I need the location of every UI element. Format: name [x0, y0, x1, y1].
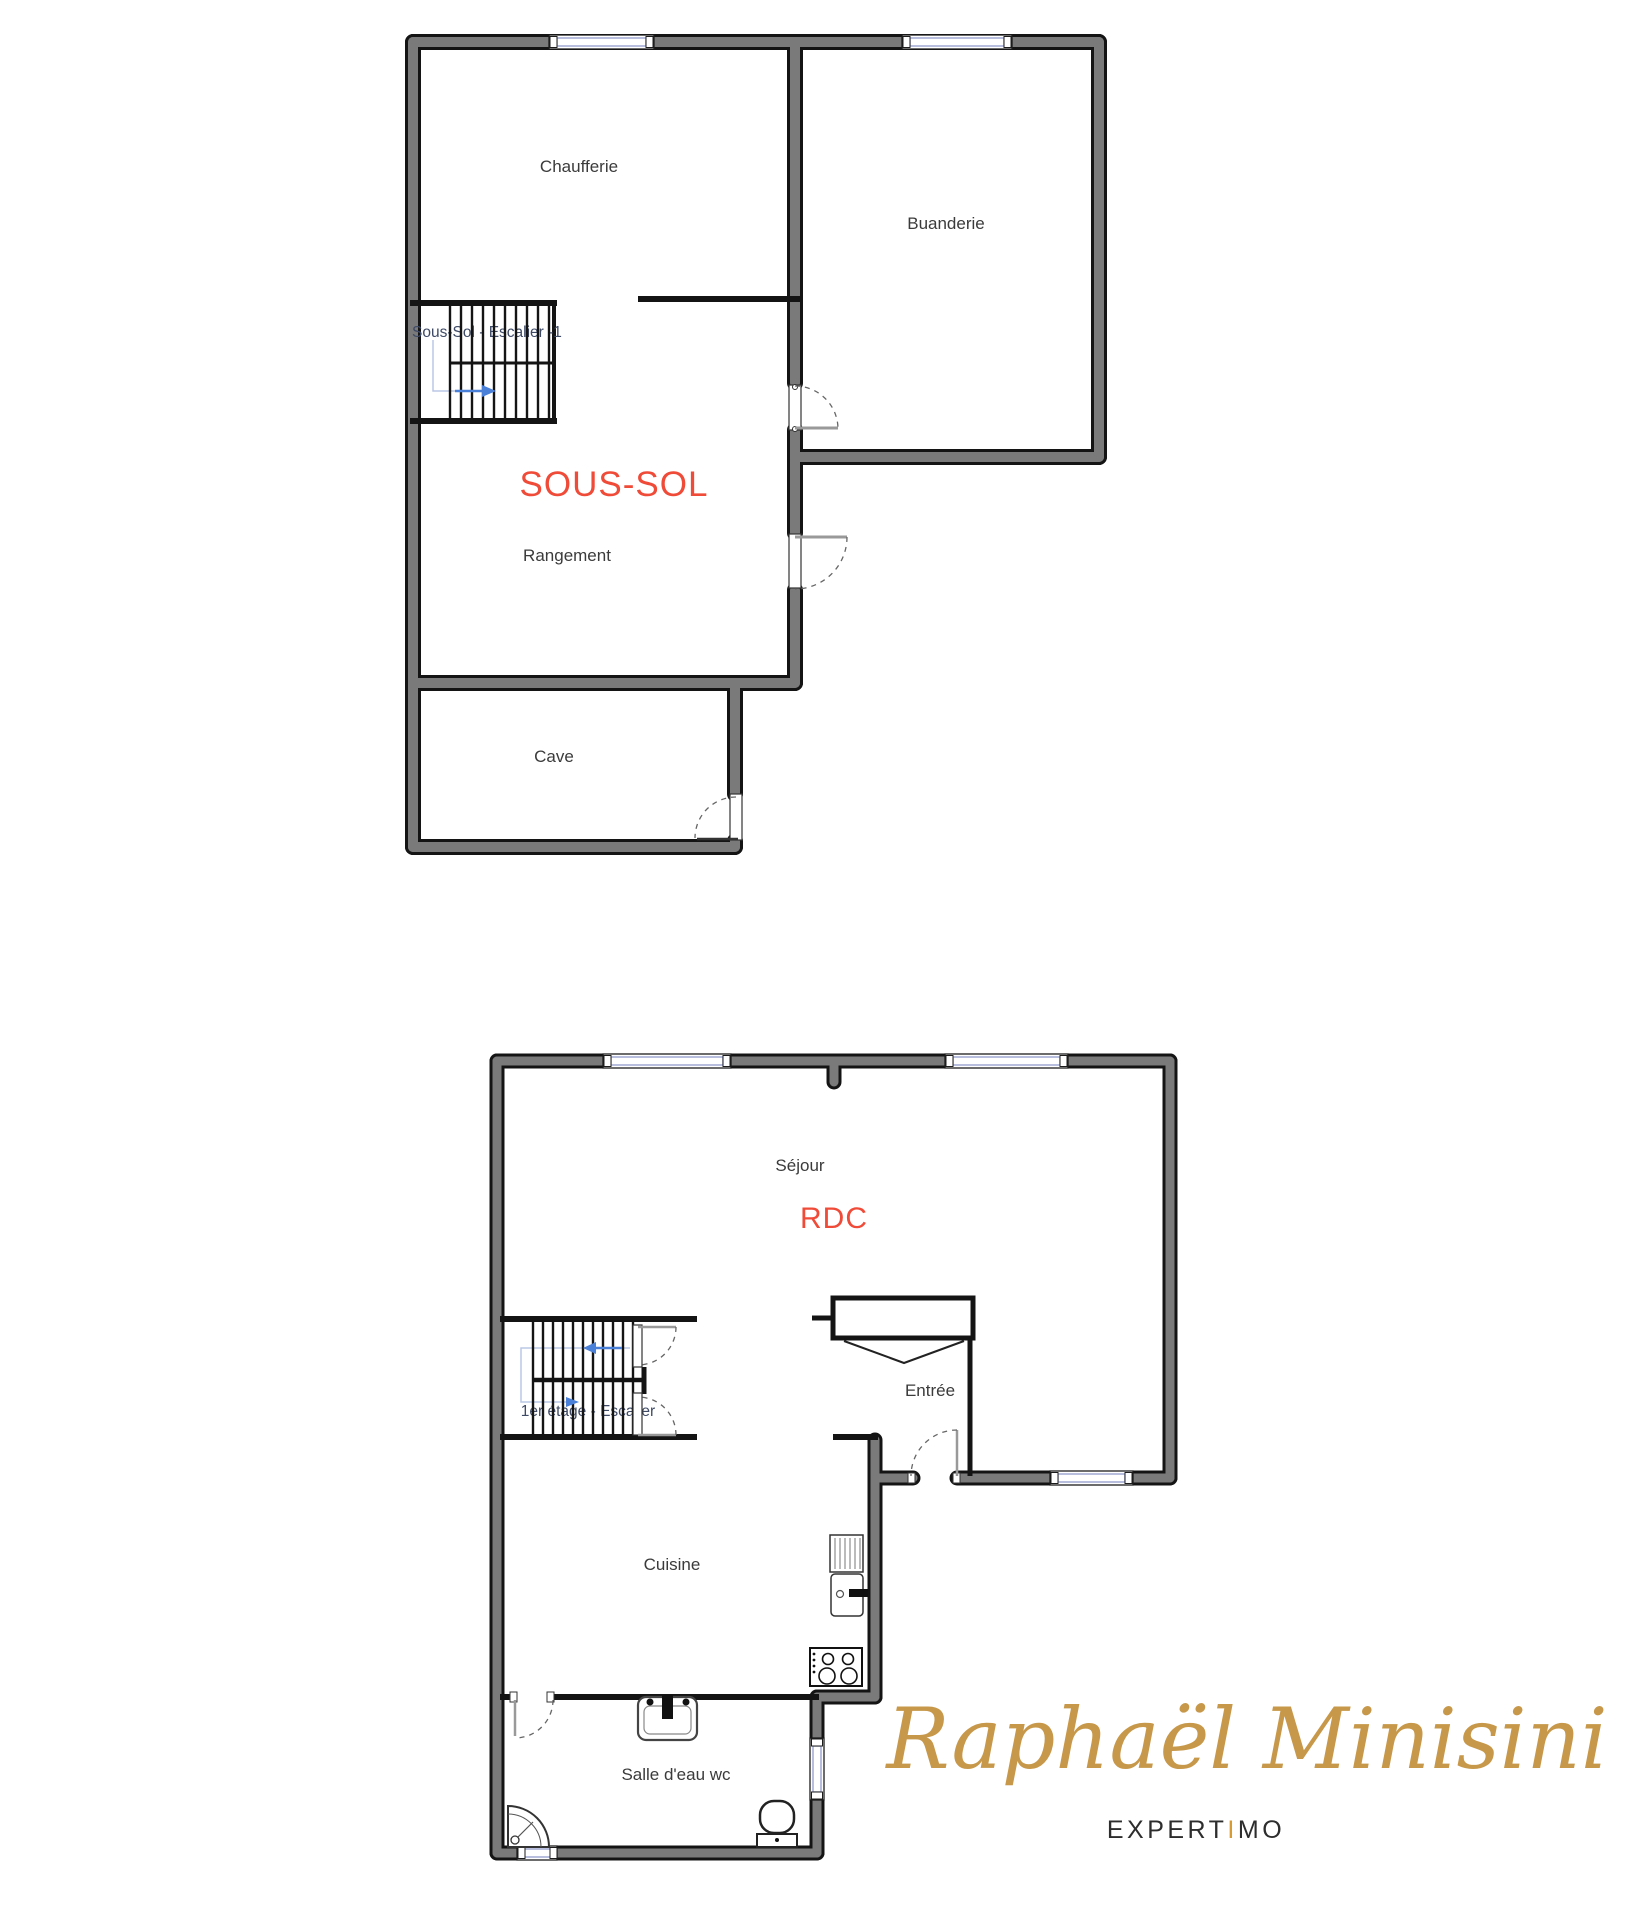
basement-door-rangement: [789, 534, 847, 589]
brand-logo-part2: MO: [1238, 1816, 1285, 1844]
stove-icon: [810, 1648, 862, 1686]
rdc-staircase: 1er étage - Escalier: [521, 1322, 676, 1435]
basement-door-cave: [695, 794, 742, 840]
rdc-window-sejour-left: [603, 1054, 731, 1068]
room-label-sejour: Séjour: [775, 1156, 824, 1175]
rdc-window-salle-deau-bottom: [517, 1846, 557, 1860]
entree-closet: [833, 1298, 973, 1363]
kitchen-counter-icon: [830, 1535, 863, 1572]
room-label-cuisine: Cuisine: [644, 1555, 701, 1574]
basement-door-buanderie: [789, 385, 838, 432]
basement-stair-label: Sous-Sol - Escalier -1: [412, 324, 562, 341]
room-label-salle-deau: Salle d'eau wc: [621, 1765, 731, 1784]
basement-staircase: Sous-Sol - Escalier -1: [412, 306, 562, 418]
basement-window-buanderie: [902, 35, 1012, 49]
brand-logo-expertimo: EXPERTIMO: [1107, 1816, 1285, 1844]
basement-interior-walls: [410, 299, 801, 421]
stair-door-top: [633, 1325, 676, 1367]
shower-icon: [508, 1806, 549, 1847]
basement-plan: Sous-Sol - Escalier -1: [410, 35, 1099, 847]
rdc-window-salle-deau-right: [810, 1738, 824, 1800]
room-label-cave: Cave: [534, 747, 574, 766]
closet-hanger-chevron: [844, 1341, 964, 1363]
room-label-buanderie: Buanderie: [907, 214, 985, 233]
floor-plan-drawing: Sous-Sol - Escalier -1: [0, 0, 1630, 1924]
basement-exterior-walls-fill: [413, 42, 1099, 847]
rdc-window-entree: [1050, 1471, 1133, 1485]
room-label-entree: Entrée: [905, 1381, 955, 1400]
agent-signature: Raphaël Minisini: [884, 1690, 1607, 1788]
brand-logo-accent: I: [1227, 1816, 1237, 1844]
rdc-floor-title: RDC: [800, 1202, 868, 1235]
kitchen-sink-icon: [831, 1574, 868, 1616]
basement-window-chaufferie: [549, 35, 654, 49]
floor-plan-page: Sous-Sol - Escalier -1: [0, 0, 1630, 1924]
cuisine-door: [510, 1692, 554, 1738]
basement-floor-title: SOUS-SOL: [520, 465, 709, 504]
basement-exterior-walls-outline: [413, 42, 1099, 847]
washbasin-icon: [638, 1695, 697, 1740]
room-label-rangement: Rangement: [523, 546, 611, 565]
rdc-window-sejour-right: [945, 1054, 1068, 1068]
branding-signature: Raphaël Minisini EXPERTIMO: [884, 1690, 1607, 1844]
room-label-chaufferie: Chaufferie: [540, 157, 618, 176]
toilet-icon: [757, 1801, 797, 1847]
rdc-interior-walls: [500, 1318, 970, 1697]
brand-logo-part1: EXPERT: [1107, 1816, 1228, 1844]
